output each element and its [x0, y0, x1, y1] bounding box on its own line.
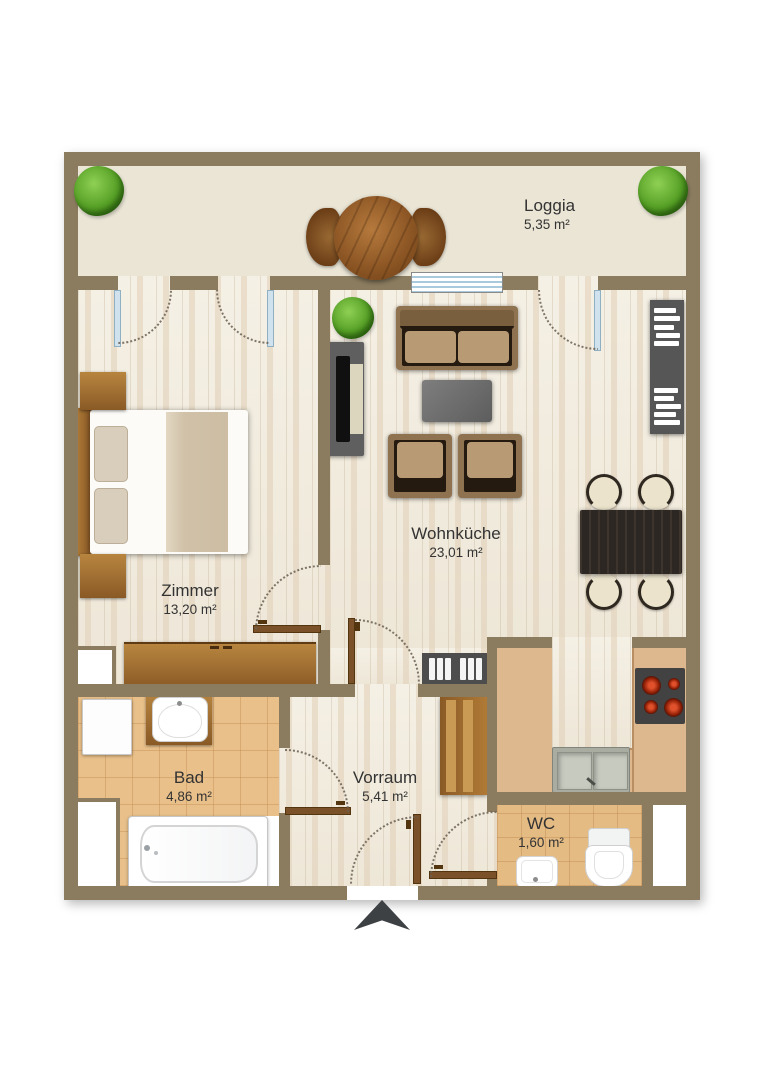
window	[411, 272, 503, 293]
sink-basin	[557, 752, 592, 790]
armchair-cushion	[397, 442, 443, 478]
room-label-zimmer: Zimmer 13,20 m²	[161, 581, 219, 618]
cooktop	[635, 668, 685, 724]
washbasin	[152, 697, 208, 742]
zimmer-divider-wall	[318, 290, 330, 565]
sofa-cushion	[405, 331, 456, 363]
wc-shaft	[653, 805, 686, 886]
sofa-cushion	[458, 331, 509, 363]
loggia-wall-segment	[78, 276, 118, 290]
bathtub-faucet	[144, 845, 150, 851]
tv-board-panel	[350, 364, 363, 434]
armchair	[388, 434, 452, 498]
hallway-wardrobe	[440, 697, 487, 795]
armchair	[458, 434, 522, 498]
kitchen-top-wall	[632, 637, 686, 648]
wardrobe-handle	[223, 646, 232, 649]
zimmer-divider-wall	[318, 630, 330, 684]
room-name: Bad	[166, 768, 212, 789]
entrance-arrow	[354, 900, 410, 930]
kitchen-counter-left	[497, 648, 554, 792]
armchair-cushion	[467, 442, 513, 478]
bed-blanket	[166, 412, 228, 552]
wardrobe-door-stripe	[446, 700, 456, 792]
bookshelf	[650, 300, 684, 434]
loggia-round-table	[334, 196, 418, 280]
loggia-wall-segment	[170, 276, 218, 290]
toilet-bowl-inner	[594, 851, 624, 879]
exterior-wall-bottom-left	[64, 886, 347, 900]
wc-left-wall	[487, 805, 497, 812]
floorplan-canvas: Loggia 5,35 m² Zimmer 13,20 m² Wohnküche…	[0, 0, 764, 1080]
exterior-wall-top	[64, 152, 700, 166]
room-label-wc: WC 1,60 m²	[518, 814, 564, 851]
bath-hall-wall	[279, 813, 290, 886]
room-label-bad: Bad 4,86 m²	[166, 768, 212, 805]
shoe-cabinet	[422, 653, 488, 686]
bath-hall-wall	[279, 697, 290, 748]
zimmer-wardrobe	[124, 642, 316, 688]
tv	[336, 356, 350, 442]
bathtub	[128, 816, 268, 890]
wc-left-wall	[487, 878, 497, 886]
kitchen-bottom-wall	[487, 792, 700, 805]
sofa-back	[400, 310, 514, 329]
exterior-wall-right	[686, 152, 700, 900]
loggia-wall-segment	[598, 276, 686, 290]
room-area: 5,41 m²	[353, 789, 417, 805]
washing-machine	[82, 699, 132, 755]
wardrobe-door-stripe	[463, 700, 473, 792]
nightstand	[80, 554, 126, 598]
room-name: Loggia	[524, 196, 575, 217]
exterior-wall-left	[64, 152, 78, 900]
room-name: WC	[518, 814, 564, 835]
kitchen-left-wall	[487, 637, 497, 795]
wc-hand-basin	[516, 856, 558, 888]
room-area: 13,20 m²	[161, 602, 219, 618]
hallway-top-wall	[418, 684, 497, 697]
washbasin-bowl	[158, 704, 202, 738]
bathtub-drain	[154, 851, 158, 855]
room-area: 4,86 m²	[166, 789, 212, 805]
room-label-wohnkueche: Wohnküche 23,01 m²	[411, 524, 500, 561]
loggia-wall-segment	[270, 276, 413, 290]
dining-table	[580, 510, 682, 574]
table-plank-lines	[334, 196, 418, 280]
kitchen-top-wall	[487, 637, 552, 648]
toilet-bowl	[585, 845, 633, 887]
bed-pillow	[94, 426, 128, 482]
kitchen-sink	[552, 747, 630, 793]
bathroom-shaft	[78, 798, 120, 886]
room-label-loggia: Loggia 5,35 m²	[524, 196, 575, 233]
room-area: 5,35 m²	[524, 217, 575, 233]
room-name: Wohnküche	[411, 524, 500, 545]
loggia-wall-segment	[500, 276, 538, 290]
room-area: 1,60 m²	[518, 835, 564, 851]
zimmer-shaft	[78, 646, 116, 684]
washbasin-vanity	[146, 692, 212, 745]
wc-basin-faucet	[533, 877, 538, 882]
sofa	[396, 306, 518, 370]
room-name: Zimmer	[161, 581, 219, 602]
toilet	[585, 828, 631, 886]
kitchen-aisle-floor	[552, 637, 632, 748]
room-area: 23,01 m²	[411, 545, 500, 561]
hallway-top-wall	[64, 684, 355, 697]
nightstand	[80, 372, 126, 410]
hallway-door-leaf	[348, 618, 355, 684]
sink-basin	[593, 752, 628, 790]
washbasin-faucet	[177, 701, 182, 706]
room-name: Vorraum	[353, 768, 417, 789]
coffee-table	[422, 380, 492, 422]
bed-pillow	[94, 488, 128, 544]
wardrobe-handle	[210, 646, 219, 649]
room-label-vorraum: Vorraum 5,41 m²	[353, 768, 417, 805]
wc-shaft-wall	[642, 805, 653, 886]
exterior-wall-bottom-right	[418, 886, 700, 900]
